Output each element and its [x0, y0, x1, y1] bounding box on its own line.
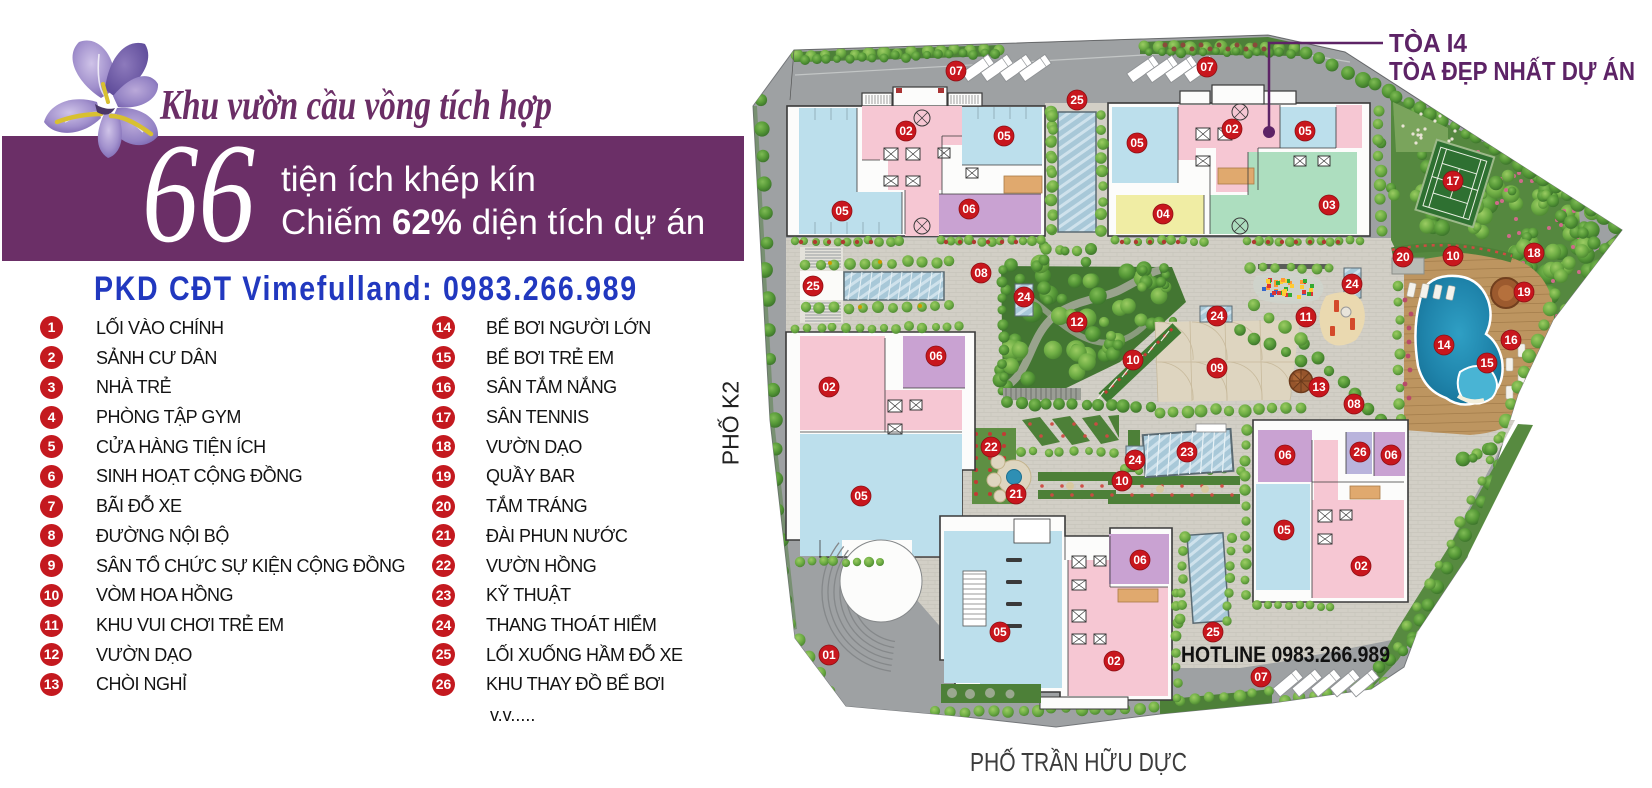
svg-text:02: 02	[1225, 122, 1239, 136]
svg-text:24: 24	[1345, 277, 1359, 291]
svg-text:24: 24	[1017, 290, 1031, 304]
svg-text:22: 22	[984, 440, 998, 454]
svg-text:24: 24	[1210, 309, 1224, 323]
svg-text:24: 24	[1128, 453, 1142, 467]
svg-text:05: 05	[1130, 136, 1144, 150]
svg-text:08: 08	[974, 266, 988, 280]
svg-text:20: 20	[1396, 250, 1410, 264]
svg-text:05: 05	[997, 129, 1011, 143]
svg-text:23: 23	[1180, 445, 1194, 459]
svg-text:04: 04	[1156, 207, 1170, 221]
svg-text:01: 01	[822, 648, 836, 662]
svg-text:13: 13	[1312, 380, 1326, 394]
svg-text:07: 07	[949, 64, 963, 78]
svg-text:08: 08	[1347, 397, 1361, 411]
svg-text:17: 17	[1446, 174, 1460, 188]
svg-text:TÒA ĐẸP NHẤT DỰ ÁN: TÒA ĐẸP NHẤT DỰ ÁN	[1389, 56, 1635, 86]
svg-text:02: 02	[1354, 559, 1368, 573]
svg-text:05: 05	[854, 489, 868, 503]
svg-text:26: 26	[1353, 445, 1367, 459]
svg-text:25: 25	[1070, 93, 1084, 107]
svg-text:TÒA I4: TÒA I4	[1389, 28, 1468, 58]
svg-text:03: 03	[1322, 198, 1336, 212]
svg-text:02: 02	[899, 124, 913, 138]
svg-text:09: 09	[1210, 361, 1224, 375]
svg-text:25: 25	[1206, 625, 1220, 639]
svg-text:05: 05	[993, 625, 1007, 639]
svg-text:10: 10	[1115, 474, 1129, 488]
svg-text:02: 02	[1107, 654, 1121, 668]
svg-text:05: 05	[1298, 124, 1312, 138]
svg-text:06: 06	[1384, 448, 1398, 462]
svg-text:10: 10	[1446, 249, 1460, 263]
svg-text:06: 06	[1133, 553, 1147, 567]
svg-text:19: 19	[1517, 285, 1531, 299]
svg-text:07: 07	[1200, 60, 1214, 74]
svg-text:07: 07	[1254, 670, 1268, 684]
svg-text:05: 05	[835, 204, 849, 218]
svg-text:18: 18	[1527, 246, 1541, 260]
svg-text:15: 15	[1480, 356, 1494, 370]
svg-text:05: 05	[1277, 523, 1291, 537]
svg-text:11: 11	[1300, 310, 1313, 324]
svg-text:14: 14	[1437, 338, 1451, 352]
svg-text:06: 06	[1278, 448, 1292, 462]
svg-text:02: 02	[822, 380, 836, 394]
svg-text:HOTLINE 0983.266.989: HOTLINE 0983.266.989	[1181, 642, 1390, 667]
svg-text:06: 06	[929, 349, 943, 363]
svg-text:06: 06	[962, 202, 976, 216]
svg-text:10: 10	[1126, 353, 1140, 367]
svg-text:12: 12	[1070, 315, 1084, 329]
svg-text:16: 16	[1504, 333, 1518, 347]
svg-text:PHỐ TRẦN HỮU DỰC: PHỐ TRẦN HỮU DỰC	[970, 747, 1187, 777]
svg-text:25: 25	[806, 279, 820, 293]
svg-text:21: 21	[1009, 487, 1023, 501]
